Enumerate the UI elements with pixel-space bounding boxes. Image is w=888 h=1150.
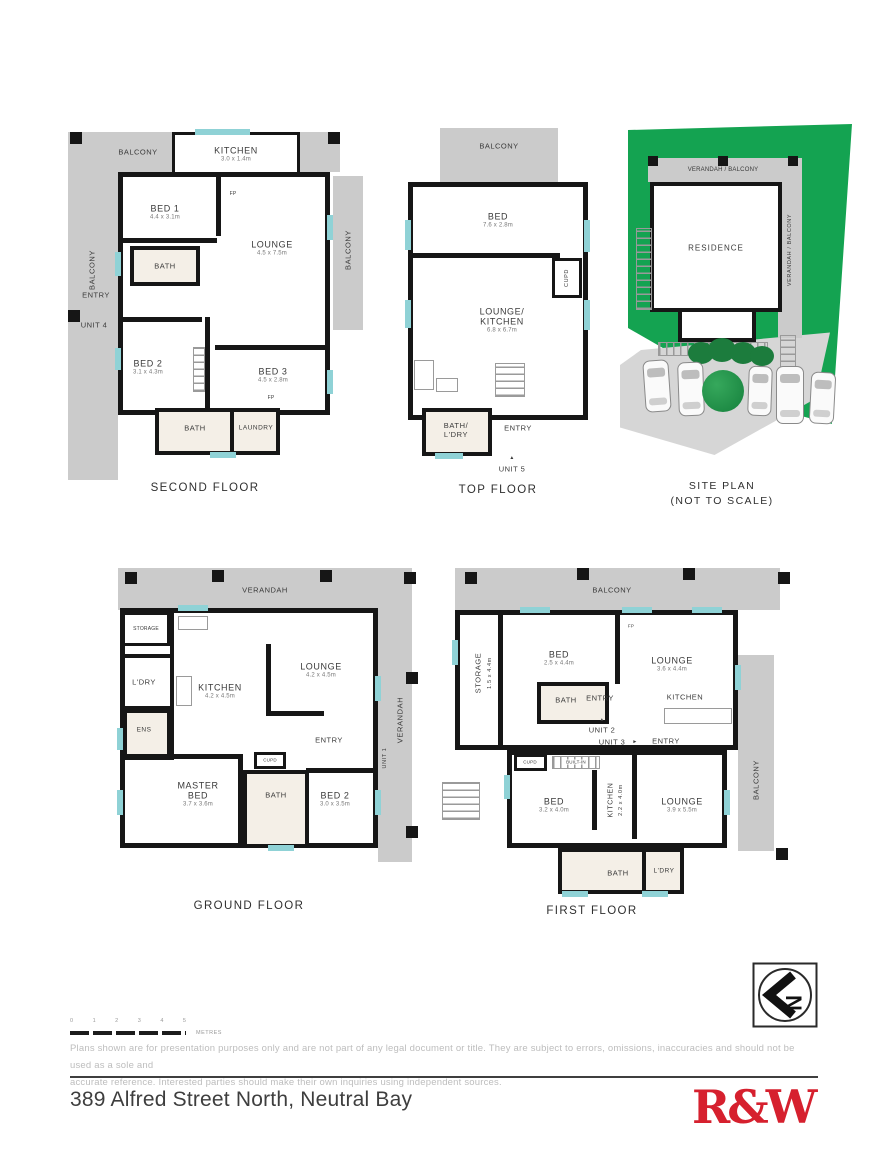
agency-logo: R&W bbox=[692, 1080, 814, 1134]
north-compass-icon: N bbox=[752, 962, 818, 1028]
pillar-marker bbox=[320, 570, 332, 582]
room-label-lounge: LOUNGE 3.9 x 5.5m bbox=[661, 797, 703, 814]
wall bbox=[592, 770, 597, 830]
car bbox=[809, 371, 837, 424]
plan-site: VERANDAH / BALCONY VERANDAH / BALCONY RE… bbox=[620, 120, 860, 515]
room-label-bed1: BED 1 4.4 x 3.1m bbox=[150, 204, 180, 221]
plan-title: SECOND FLOOR bbox=[60, 482, 350, 494]
room-name: L'DRY bbox=[444, 430, 468, 439]
scale-tick: 5 bbox=[183, 1018, 186, 1024]
residence-label: RESIDENCE bbox=[688, 244, 744, 253]
unit-label: UNIT 5 bbox=[499, 465, 526, 474]
up-arrow-icon: ▲ bbox=[509, 455, 514, 461]
balcony-area bbox=[440, 128, 558, 182]
car bbox=[747, 366, 773, 417]
room-dim: 4.5 x 2.8m bbox=[258, 378, 288, 384]
wall bbox=[266, 644, 271, 716]
residence-outline bbox=[678, 308, 756, 342]
right-arrow-icon: ► bbox=[632, 739, 637, 745]
plan-top-floor: BALCONY BED 7.6 x 2.8m CUPD LOUNGE/ KITC… bbox=[400, 120, 628, 505]
room-dim: 4.4 x 3.1m bbox=[150, 215, 180, 221]
window-marker bbox=[375, 676, 381, 701]
window-marker bbox=[405, 300, 411, 328]
balcony-label: BALCONY bbox=[118, 148, 157, 157]
room-name: BED bbox=[549, 650, 569, 660]
laundry-label: L'DRY bbox=[132, 678, 156, 687]
pillar-marker bbox=[776, 848, 788, 860]
verandah-label: VERANDAH / BALCONY bbox=[688, 167, 759, 173]
room-label-lounge: LOUNGE 4.5 x 7.5m bbox=[251, 240, 293, 257]
scale-tick: 0 bbox=[70, 1018, 73, 1024]
scale-bar bbox=[70, 1031, 186, 1035]
window-marker bbox=[504, 775, 510, 799]
wall bbox=[120, 754, 242, 759]
scale-tick: 3 bbox=[138, 1018, 141, 1024]
window-marker bbox=[115, 348, 121, 370]
fireplace-label: FP bbox=[628, 624, 634, 629]
storage-label: STORAGE bbox=[133, 626, 159, 632]
window-marker bbox=[520, 607, 550, 613]
room-label-lounge: LOUNGE 4.2 x 4.5m bbox=[300, 662, 342, 679]
tree bbox=[702, 370, 744, 412]
scale-unit-label: METRES bbox=[196, 1030, 222, 1036]
room-label-bed2: BED 2 3.1 x 4.3m bbox=[133, 359, 163, 376]
room-label-master-bed: MASTER BED 3.7 x 3.6m bbox=[177, 781, 218, 808]
window-marker bbox=[178, 605, 208, 611]
room-dim: 3.1 x 4.3m bbox=[133, 370, 163, 376]
pillar-marker bbox=[406, 672, 418, 684]
verandah-label: VERANDAH bbox=[396, 697, 405, 743]
window-marker bbox=[724, 790, 730, 815]
stairs bbox=[442, 782, 480, 820]
room-name: BED bbox=[544, 797, 564, 807]
plan-title: TOP FLOOR bbox=[400, 484, 596, 496]
pillar-marker bbox=[406, 826, 418, 838]
wall bbox=[122, 238, 217, 243]
floorplan-page: BALCONY BALCONY BALCONY KITCHEN 3.0 x 1.… bbox=[0, 0, 888, 1150]
bath-label: BATH bbox=[184, 424, 205, 433]
cupboard-label: CUPD bbox=[564, 269, 570, 287]
wall bbox=[205, 317, 210, 413]
room-dim: 3.7 x 3.6m bbox=[183, 802, 213, 808]
wall bbox=[642, 850, 646, 892]
window-marker bbox=[117, 728, 123, 750]
property-address: 389 Alfred Street North, Neutral Bay bbox=[70, 1088, 412, 1112]
room-label-bed2: BED 2 3.0 x 3.5m bbox=[320, 791, 350, 808]
room-name: LOUNGE bbox=[651, 656, 693, 666]
room-label-bed3: BED 3 4.5 x 2.8m bbox=[258, 367, 288, 384]
plan-second-floor: BALCONY BALCONY BALCONY KITCHEN 3.0 x 1.… bbox=[60, 120, 350, 500]
entry-label: ENTRY bbox=[82, 291, 110, 300]
room-name: LOUNGE bbox=[251, 240, 293, 250]
cupboard-label: CUPD bbox=[263, 758, 277, 763]
room-dim: 6.8 x 6.7m bbox=[487, 328, 517, 334]
room-dim: 3.9 x 5.5m bbox=[667, 808, 697, 814]
window-marker bbox=[622, 607, 652, 613]
window-marker bbox=[117, 790, 123, 815]
wall bbox=[412, 253, 560, 258]
room-label-bath-ldry: BATH/ L'DRY bbox=[444, 421, 469, 439]
kitchen-fixture bbox=[176, 676, 192, 706]
unit-label: UNIT 4 bbox=[81, 321, 108, 330]
pillar-marker bbox=[465, 572, 477, 584]
scale-tick: 1 bbox=[93, 1018, 96, 1024]
bath-label: BATH bbox=[265, 791, 286, 800]
room-dim: 7.6 x 2.8m bbox=[483, 223, 513, 229]
room-label-lounge: LOUNGE 3.6 x 4.4m bbox=[651, 656, 693, 673]
room-name: LOUNGE bbox=[661, 797, 703, 807]
built-in-label: BUILT-IN bbox=[565, 760, 587, 765]
window-marker bbox=[210, 452, 236, 458]
wall bbox=[215, 345, 330, 350]
disclaimer-line: Plans shown are for presentation purpose… bbox=[70, 1040, 818, 1074]
wall bbox=[122, 654, 170, 658]
pillar-marker bbox=[68, 310, 80, 322]
kitchen-fixture bbox=[414, 360, 434, 390]
ensuite-label: ENS bbox=[137, 727, 152, 734]
wall bbox=[170, 612, 174, 760]
room-name: BED 2 bbox=[320, 791, 349, 801]
stairs bbox=[193, 347, 205, 392]
room-dim: 3.0 x 1.4m bbox=[221, 157, 251, 163]
room-dim: 4.2 x 4.5m bbox=[205, 694, 235, 700]
balcony-label: BALCONY bbox=[479, 142, 518, 151]
window-marker bbox=[375, 790, 381, 815]
entry-label: ENTRY bbox=[315, 736, 343, 745]
scale-tick: 4 bbox=[160, 1018, 163, 1024]
room-label-kitchen: KITCHEN 3.0 x 1.4m bbox=[214, 146, 258, 163]
kitchen-fixture bbox=[664, 708, 732, 724]
room-label-bed: BED 3.2 x 4.0m bbox=[539, 797, 569, 814]
entry-label: ENTRY bbox=[652, 737, 680, 746]
divider-rule bbox=[70, 1076, 818, 1078]
room-name: BED 1 bbox=[150, 204, 179, 214]
room-dim: 3.6 x 4.4m bbox=[657, 667, 687, 673]
bath-label: BATH bbox=[154, 262, 175, 271]
balcony-label: BALCONY bbox=[752, 760, 761, 800]
room-label-bed: BED 7.6 x 2.8m bbox=[483, 212, 513, 229]
stairs bbox=[636, 228, 652, 310]
pillar-marker bbox=[683, 568, 695, 580]
window-marker bbox=[195, 129, 250, 135]
room-dim: 4.5 x 7.5m bbox=[257, 251, 287, 257]
window-marker bbox=[268, 845, 294, 851]
wall bbox=[498, 614, 503, 746]
kitchen-fixture bbox=[178, 616, 208, 630]
room-name: KITCHEN bbox=[198, 683, 242, 693]
pillar-marker bbox=[404, 572, 416, 584]
unit-label: UNIT 1 bbox=[382, 748, 388, 769]
room-label-lounge-kitchen: LOUNGE/ KITCHEN 6.8 x 6.7m bbox=[480, 307, 525, 334]
balcony-label: BALCONY bbox=[592, 586, 631, 595]
kitchen-fixture bbox=[436, 378, 458, 392]
window-marker bbox=[115, 252, 121, 276]
room-dim: 4.2 x 4.5m bbox=[306, 673, 336, 679]
pillar-marker bbox=[328, 132, 340, 144]
scale-tick: 2 bbox=[115, 1018, 118, 1024]
window-marker bbox=[327, 370, 333, 394]
window-marker bbox=[642, 891, 668, 897]
wall bbox=[615, 614, 620, 684]
plan-title: SITE PLAN bbox=[620, 480, 824, 492]
plan-title: GROUND FLOOR bbox=[108, 900, 390, 912]
room-label-kitchen: KITCHEN 4.2 x 4.5m bbox=[198, 683, 242, 700]
pillar-marker bbox=[212, 570, 224, 582]
cupboard-label: CUPD bbox=[523, 760, 537, 765]
window-marker bbox=[692, 607, 722, 613]
window-marker bbox=[435, 453, 463, 459]
car bbox=[677, 362, 705, 417]
scale-bar-ticks: 0 1 2 3 4 5 bbox=[70, 1018, 186, 1024]
pillar-marker bbox=[788, 156, 798, 166]
fireplace-label: FP bbox=[268, 395, 275, 401]
room-name: BED bbox=[488, 212, 508, 222]
bath-label: BATH bbox=[607, 869, 628, 878]
ensuite-room bbox=[124, 710, 170, 760]
car bbox=[642, 359, 672, 413]
pillar-marker bbox=[718, 156, 728, 166]
balcony-area bbox=[738, 655, 774, 851]
plan-first-floor: BALCONY BALCONY STORAGE 1.5 x 4.4m BED 2… bbox=[442, 558, 792, 928]
plan-title: FIRST FLOOR bbox=[442, 905, 742, 917]
room-dim: 3.2 x 4.0m bbox=[539, 808, 569, 814]
room-dim: 2.5 x 4.4m bbox=[544, 661, 574, 667]
window-marker bbox=[327, 215, 333, 240]
laundry-label: LAUNDRY bbox=[239, 425, 273, 432]
balcony-label: BALCONY bbox=[344, 230, 353, 270]
pillar-marker bbox=[648, 156, 658, 166]
wall bbox=[230, 410, 234, 453]
window-marker bbox=[452, 640, 458, 665]
laundry-label: L'DRY bbox=[654, 868, 675, 875]
room-name: BATH/ bbox=[444, 421, 469, 430]
fireplace-label: FP bbox=[230, 191, 237, 197]
bath-room bbox=[243, 770, 309, 848]
storage-label: STORAGE bbox=[474, 653, 483, 694]
room-name: BED 3 bbox=[258, 367, 287, 377]
storage-dim: 1.5 x 4.4m bbox=[487, 657, 493, 689]
window-marker bbox=[584, 300, 590, 330]
entry-label: ENTRY bbox=[586, 694, 614, 703]
pillar-marker bbox=[778, 572, 790, 584]
room-name: BED bbox=[188, 791, 208, 801]
verandah-label: VERANDAH bbox=[242, 586, 288, 595]
wall bbox=[266, 711, 324, 716]
pillar-marker bbox=[577, 568, 589, 580]
window-marker bbox=[735, 665, 741, 690]
unit-label: UNIT 2 bbox=[589, 726, 616, 735]
entry-label: ENTRY bbox=[504, 424, 532, 433]
tree bbox=[750, 346, 774, 366]
up-arrow-icon: ▲ bbox=[599, 717, 604, 723]
bath-label: BATH bbox=[555, 696, 576, 705]
room-name: LOUNGE bbox=[300, 662, 342, 672]
pillar-marker bbox=[70, 132, 82, 144]
room-dim: 3.0 x 3.5m bbox=[320, 802, 350, 808]
room-name: LOUNGE/ bbox=[480, 307, 525, 317]
room-name: KITCHEN bbox=[214, 146, 258, 156]
pillar-marker bbox=[125, 572, 137, 584]
room-name: KITCHEN bbox=[480, 317, 524, 327]
wall bbox=[306, 768, 378, 773]
room-label-bed: BED 2.5 x 4.4m bbox=[544, 650, 574, 667]
bath-laundry-annex bbox=[155, 408, 280, 455]
wall bbox=[122, 317, 202, 322]
plan-subtitle: (NOT TO SCALE) bbox=[620, 495, 824, 507]
balcony-label: BALCONY bbox=[88, 250, 97, 290]
kitchen-dim: 2.2 x 4.0m bbox=[618, 784, 624, 816]
window-marker bbox=[584, 220, 590, 252]
room-name: MASTER bbox=[177, 781, 218, 791]
kitchen-label: KITCHEN bbox=[667, 693, 703, 702]
kitchen-label: KITCHEN bbox=[608, 783, 615, 818]
compass-n: N bbox=[781, 995, 806, 1011]
plan-ground-floor: VERANDAH VERANDAH UNIT 1 STORAGE L'DRY E… bbox=[108, 558, 424, 928]
window-marker bbox=[562, 891, 588, 897]
verandah-label: VERANDAH / BALCONY bbox=[787, 214, 793, 286]
stairs bbox=[495, 363, 525, 397]
room-name: BED 2 bbox=[133, 359, 162, 369]
wall bbox=[216, 176, 221, 236]
unit-label: UNIT 3 bbox=[599, 738, 626, 747]
wall bbox=[632, 754, 637, 839]
car bbox=[776, 366, 804, 424]
window-marker bbox=[405, 220, 411, 250]
